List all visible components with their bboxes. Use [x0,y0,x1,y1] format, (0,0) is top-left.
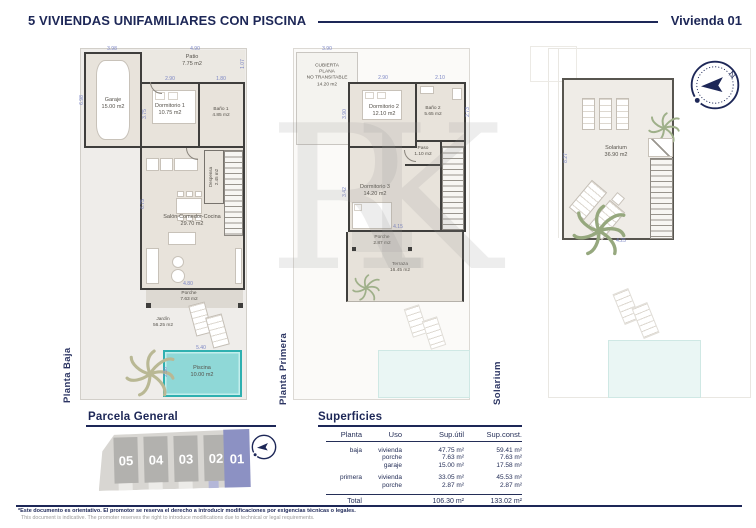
page-title: 5 VIVIENDAS UNIFAMILIARES CON PISCINA [28,13,306,28]
wall [200,146,243,148]
col-planta: Planta [326,431,362,441]
stair-landing-icon [648,138,673,157]
dimension: 2.73 [465,107,471,117]
room-label-paso: Paso1.10 m2 [414,146,431,158]
superficies-title: Superficies [318,411,382,423]
dimension: 6.98 [79,95,85,105]
room-label-dormitorio3: Dormitorio 314.20 m2 [360,184,390,198]
chair-icon [195,191,202,197]
room-label-bano1: Baño 14.85 m2 [212,107,229,119]
room-label-patio: Patio7.75 m2 [182,54,202,68]
sofa-icon [146,248,159,284]
room-label-bano2: Baño 25.65 m2 [424,106,441,118]
plant-icon [352,274,380,302]
footer-rule [16,505,742,507]
room-label-jardin: Jardín56.25 m2 [153,317,173,329]
dimension: 3.42 [342,187,348,197]
porch-column [146,303,151,308]
north-label: N [727,69,738,80]
room-label-piscina: Piscina10.00 m2 [191,365,214,379]
room-label-porche: Porche7.63 m2 [180,291,197,303]
total-util: 106.30 m² [402,495,464,506]
table-row: porche 7.63 m²7.63 m² [326,454,522,462]
stairs-icon [442,146,464,230]
dimension: 1.80 [216,76,226,82]
side-table-icon [172,256,184,268]
room-label-garaje: Garaje15.00 m2 [102,97,125,111]
dimension: 4.25 [616,238,626,244]
room-label-porche-primera: Porche2.87 m2 [373,235,390,247]
room-label-terraza: Terraza16.45 m2 [390,262,410,274]
total-label: Total [326,495,362,506]
room-label-dormitorio1: Dormitorio 110.75 m2 [155,103,185,117]
porch-column [408,247,412,251]
plan-label-planta-primera: Planta Primera [278,333,289,405]
chair-icon [177,191,184,197]
dimension: 4.80 [183,281,193,287]
sun-lounger-icon [616,98,629,130]
pool-ghost [378,350,470,398]
wall [405,164,442,166]
superficies-table: Planta Uso Sup.útil Sup.const. bajavivie… [326,431,522,505]
total-const: 133.02 m² [464,495,522,506]
col-sup-const: Sup.const. [464,431,522,441]
unit-title: Vivienda 01 [656,13,742,28]
parcela-rule [86,425,276,427]
north-compass-small-icon [250,433,278,461]
dimension: 2.10 [435,75,445,81]
table-row: garaje 15.00 m²17.58 m² [326,462,522,470]
kitchen-counter-icon [146,158,159,171]
pillow-icon [377,92,386,99]
total-row: Total 106.30 m² 133.02 m² [326,495,522,506]
sink-icon [420,86,434,94]
room-label-despensa: Despensa2.45 m2 [208,167,220,187]
dimension: 3.98 [107,46,117,52]
table-header-row: Planta Uso Sup.útil Sup.const. [326,431,522,441]
dimension: 5.40 [196,345,206,351]
sofa-icon [168,232,196,245]
neighbor-ghost [530,46,577,82]
dimension: 2.90 [165,76,175,82]
room-label-cubierta: CUBIERTA PLANA NO TRANSITABLE 14.20 m2 [307,64,348,89]
table-row: bajavivienda 47.75 m²59.41 m² [326,447,522,455]
disclaimer-es: *Este documento es orientativo. El promo… [18,508,356,514]
table-row: primeravivienda 33.05 m²45.53 m² [326,474,522,482]
kitchen-hob-icon [174,158,198,171]
sideboard-icon [235,248,242,284]
dimension: 4.15 [393,224,403,230]
unit-01-highlighted: 01 [223,429,251,488]
dimension: 4.90 [190,46,200,52]
dimension: 2.90 [378,75,388,81]
dimension: 2.50 [163,367,169,377]
room-label-dormitorio2: Dormitorio 212.10 m2 [369,104,399,118]
chair-icon [186,191,193,197]
neighbor-ghost-line [558,48,559,238]
dimension: 3.75 [142,109,148,119]
porch-stub [209,481,219,488]
porch-stub [119,483,133,490]
pillow-icon [354,204,362,211]
parcela-title: Parcela General [88,411,178,423]
sun-lounger-icon [582,98,595,130]
dining-table-icon [176,198,202,214]
dimension: 3.90 [322,46,332,52]
superficies-rule [318,425,522,427]
pillow-icon [168,92,178,100]
wall [198,84,200,148]
porch-column [238,303,243,308]
header-rule [318,21,658,23]
porch-column [352,247,356,251]
pillow-icon [365,92,374,99]
kitchen-sink-icon [160,158,173,171]
toilet-icon [452,88,462,100]
dimension: 6.75 [140,199,146,209]
stairs-icon [650,158,673,239]
stairs-icon [224,150,243,236]
north-compass-icon: N [687,57,743,113]
disclaimer-en: This document is indicative. The promote… [21,515,314,521]
unit-03: 03 [173,435,198,482]
wall [350,146,417,148]
room-label-salon: Salón-Comedor-Cocina29.70 m2 [163,214,220,228]
palm-tree-icon [572,204,626,258]
plan-label-planta-baja: Planta Baja [62,347,73,403]
porch-stub [149,482,163,489]
sun-lounger-icon [599,98,612,130]
siteplan: 05 04 03 02 01 [97,429,250,491]
pool-ghost [608,340,701,398]
dimension: 8.27 [563,153,569,163]
room-label-solarium: Solarium36.90 m2 [605,145,628,159]
wall [415,84,417,146]
col-uso: Uso [362,431,402,441]
porch-stub [179,482,193,489]
col-sup-util: Sup.útil [402,431,464,441]
unit-05: 05 [113,437,138,484]
plan-label-solarium: Solarium [492,361,503,405]
table-row: porche 2.87 m²2.87 m² [326,482,522,490]
unit-04: 04 [143,436,168,483]
floorplan-sheet: Patio7.75 m2 Garaje15.00 m2 Dormitorio 1… [0,0,756,528]
dimension: 1.07 [240,59,246,69]
dimension: 3.90 [342,109,348,119]
